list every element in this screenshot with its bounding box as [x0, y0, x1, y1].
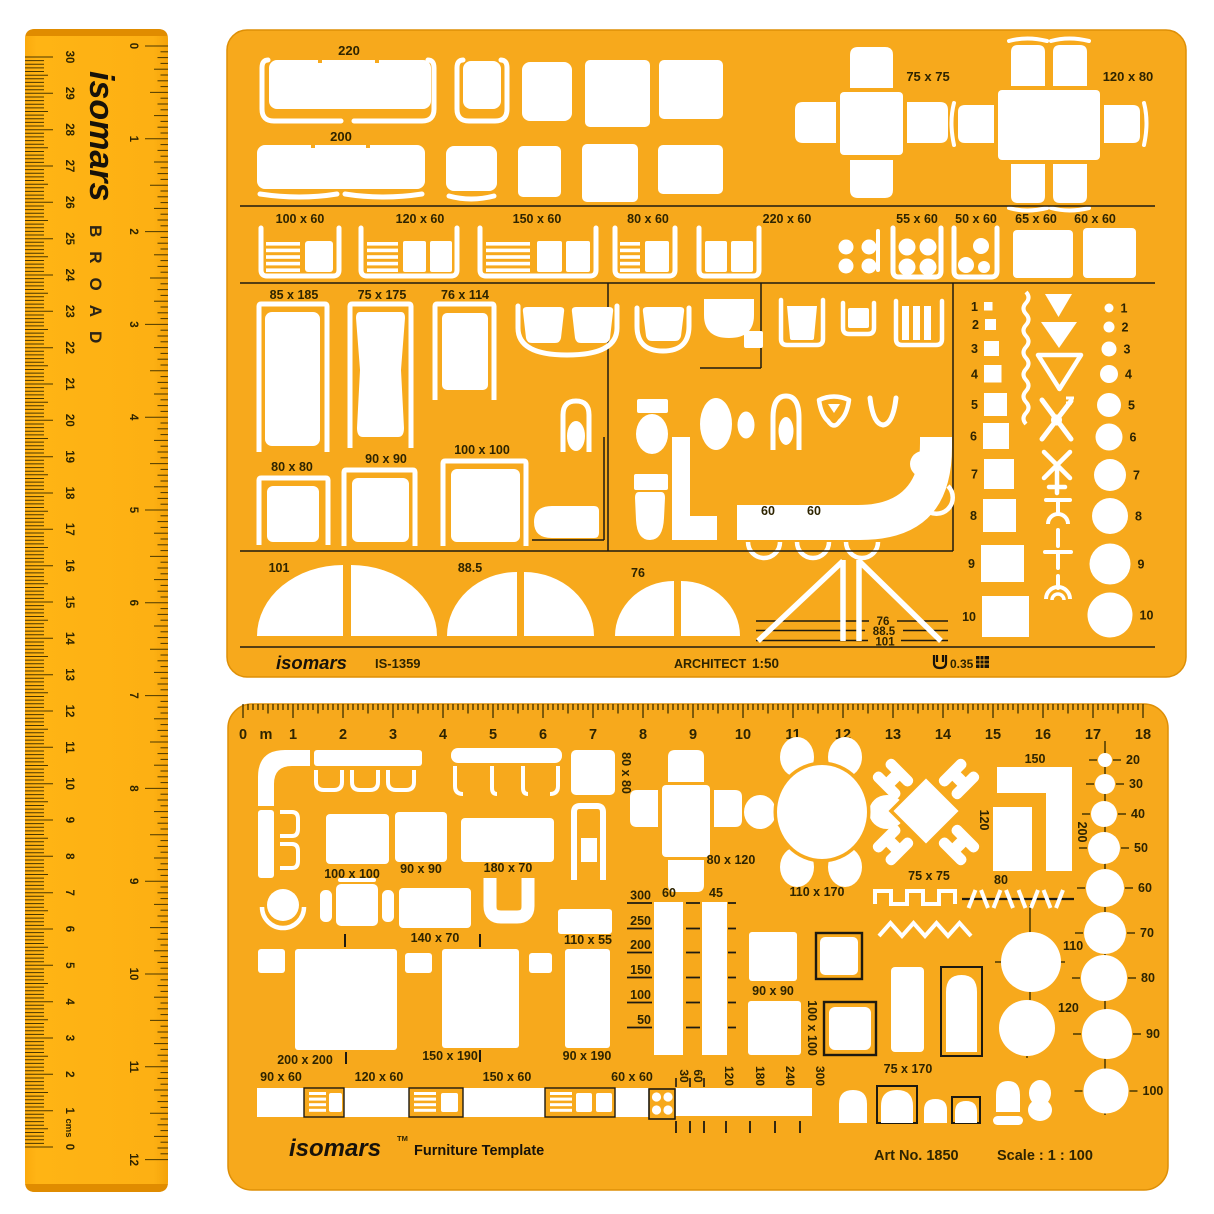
- svg-text:10: 10: [127, 968, 139, 981]
- svg-text:150 x 190: 150 x 190: [422, 1049, 478, 1063]
- svg-text:6: 6: [63, 926, 75, 932]
- svg-text:88.5: 88.5: [458, 561, 482, 575]
- svg-text:45: 45: [709, 886, 723, 900]
- svg-text:3: 3: [127, 321, 139, 327]
- svg-text:80 x 120: 80 x 120: [707, 853, 756, 867]
- svg-text:13: 13: [885, 727, 901, 743]
- svg-text:17: 17: [1085, 727, 1101, 743]
- svg-text:90 x 60: 90 x 60: [260, 1070, 302, 1084]
- svg-text:27: 27: [63, 160, 75, 173]
- svg-text:250: 250: [630, 914, 651, 928]
- svg-text:18: 18: [63, 487, 75, 500]
- svg-text:60: 60: [807, 504, 821, 518]
- svg-text:Art No. 1850: Art No. 1850: [874, 1148, 959, 1164]
- svg-text:5: 5: [1128, 399, 1135, 413]
- svg-text:0.35: 0.35: [950, 657, 974, 671]
- svg-text:80 x 80: 80 x 80: [271, 460, 313, 474]
- svg-text:18: 18: [1135, 727, 1151, 743]
- svg-text:10: 10: [962, 610, 976, 624]
- svg-text:50: 50: [637, 1013, 651, 1027]
- svg-text:20: 20: [63, 414, 75, 427]
- svg-text:4: 4: [439, 727, 447, 743]
- svg-text:15: 15: [985, 727, 1001, 743]
- svg-text:60: 60: [761, 504, 775, 518]
- svg-text:11: 11: [63, 741, 75, 754]
- svg-text:4: 4: [127, 414, 139, 421]
- svg-text:8: 8: [639, 727, 647, 743]
- svg-text:13: 13: [63, 668, 75, 681]
- svg-text:200 x 200: 200 x 200: [277, 1053, 333, 1067]
- svg-text:180: 180: [753, 1066, 767, 1086]
- svg-text:1: 1: [971, 300, 978, 314]
- svg-text:8: 8: [970, 509, 977, 523]
- svg-text:110 x 170: 110 x 170: [790, 885, 845, 899]
- svg-text:7: 7: [127, 692, 139, 698]
- svg-text:11: 11: [127, 1061, 139, 1074]
- svg-text:200: 200: [330, 129, 352, 144]
- svg-text:14: 14: [935, 727, 951, 743]
- svg-text:75 x 175: 75 x 175: [358, 288, 407, 302]
- svg-text:16: 16: [63, 559, 75, 572]
- svg-text:2: 2: [127, 228, 139, 234]
- svg-text:180 x 70: 180 x 70: [484, 861, 533, 875]
- svg-text:150: 150: [630, 963, 651, 977]
- svg-text:1: 1: [289, 727, 297, 743]
- svg-text:24: 24: [63, 269, 75, 282]
- svg-text:4: 4: [63, 998, 75, 1005]
- svg-text:0: 0: [239, 727, 247, 743]
- svg-text:80: 80: [1141, 971, 1155, 985]
- svg-text:90: 90: [1146, 1027, 1160, 1041]
- svg-text:ARCHITECT: ARCHITECT: [674, 657, 747, 671]
- svg-text:60 x 60: 60 x 60: [611, 1070, 653, 1084]
- svg-text:75 x 170: 75 x 170: [884, 1062, 933, 1076]
- svg-text:55 x 60: 55 x 60: [896, 212, 938, 226]
- svg-text:120: 120: [1058, 1001, 1079, 1015]
- svg-text:10: 10: [735, 727, 751, 743]
- svg-text:19: 19: [63, 450, 75, 463]
- svg-text:Scale : 1 : 100: Scale : 1 : 100: [997, 1148, 1093, 1164]
- svg-text:300: 300: [630, 889, 651, 903]
- svg-text:120 x 60: 120 x 60: [355, 1070, 404, 1084]
- svg-text:200: 200: [630, 938, 651, 952]
- svg-text:7: 7: [63, 889, 75, 895]
- svg-text:17: 17: [63, 523, 75, 536]
- svg-text:4: 4: [971, 367, 978, 381]
- svg-text:100 x 100: 100 x 100: [805, 1000, 819, 1056]
- svg-text:80 x 60: 80 x 60: [627, 212, 669, 226]
- svg-text:4: 4: [1125, 368, 1132, 382]
- svg-text:75 x 75: 75 x 75: [908, 869, 950, 883]
- svg-text:9: 9: [1138, 558, 1145, 572]
- svg-text:6: 6: [970, 430, 977, 444]
- svg-text:76: 76: [631, 566, 645, 580]
- svg-text:9: 9: [127, 878, 139, 884]
- svg-text:12: 12: [63, 705, 75, 718]
- svg-text:100 x 100: 100 x 100: [454, 443, 510, 457]
- svg-text:65 x 60: 65 x 60: [1015, 212, 1057, 226]
- svg-text:30: 30: [1129, 777, 1143, 791]
- svg-text:25: 25: [63, 232, 75, 245]
- svg-text:60: 60: [1138, 881, 1152, 895]
- svg-text:140 x 70: 140 x 70: [411, 931, 460, 945]
- svg-text:3: 3: [971, 342, 978, 356]
- svg-text:Furniture Template: Furniture Template: [414, 1143, 544, 1159]
- svg-text:9: 9: [689, 727, 697, 743]
- svg-text:5: 5: [971, 398, 978, 412]
- svg-text:150: 150: [1025, 752, 1046, 766]
- svg-text:120: 120: [977, 810, 991, 831]
- svg-text:150 x 60: 150 x 60: [483, 1070, 532, 1084]
- svg-text:3: 3: [63, 1035, 75, 1041]
- svg-text:300: 300: [813, 1066, 827, 1086]
- svg-text:220: 220: [338, 43, 360, 58]
- svg-text:30: 30: [63, 51, 75, 64]
- svg-text:28: 28: [63, 123, 75, 136]
- svg-text:IS-1359: IS-1359: [375, 656, 421, 671]
- svg-text:85 x 185: 85 x 185: [270, 288, 319, 302]
- svg-text:isomars: isomars: [289, 1135, 381, 1162]
- svg-text:1:50: 1:50: [752, 656, 779, 671]
- svg-text:8: 8: [63, 853, 75, 860]
- svg-text:7: 7: [1133, 469, 1140, 483]
- svg-text:3: 3: [1124, 343, 1131, 357]
- svg-text:100: 100: [630, 988, 651, 1002]
- svg-text:100: 100: [1143, 1084, 1164, 1098]
- svg-text:isomars: isomars: [82, 71, 120, 201]
- svg-text:240: 240: [783, 1066, 797, 1086]
- svg-text:110 x 55: 110 x 55: [564, 933, 612, 947]
- svg-text:50 x 60: 50 x 60: [955, 212, 997, 226]
- svg-text:60: 60: [691, 1069, 705, 1083]
- svg-text:76 x 114: 76 x 114: [441, 288, 489, 302]
- svg-text:3: 3: [389, 727, 397, 743]
- svg-text:150 x 60: 150 x 60: [513, 212, 562, 226]
- svg-text:2: 2: [63, 1071, 75, 1077]
- svg-text:220 x 60: 220 x 60: [763, 212, 812, 226]
- svg-text:TM: TM: [397, 1134, 408, 1143]
- svg-text:23: 23: [63, 305, 75, 318]
- svg-text:2: 2: [972, 318, 979, 332]
- svg-text:40: 40: [1131, 807, 1145, 821]
- svg-text:60 x 60: 60 x 60: [1074, 212, 1116, 226]
- svg-text:9: 9: [968, 557, 975, 571]
- svg-text:30: 30: [677, 1069, 691, 1083]
- svg-text:0: 0: [127, 43, 139, 49]
- svg-text:90 x 90: 90 x 90: [752, 984, 794, 998]
- svg-text:60: 60: [662, 886, 676, 900]
- svg-text:8: 8: [127, 785, 139, 792]
- svg-text:10: 10: [1140, 609, 1154, 623]
- svg-text:22: 22: [63, 341, 75, 354]
- svg-text:16: 16: [1035, 727, 1051, 743]
- svg-text:m: m: [260, 727, 273, 743]
- svg-text:110: 110: [1063, 939, 1083, 953]
- svg-text:90 x 90: 90 x 90: [365, 452, 407, 466]
- svg-text:6: 6: [539, 727, 547, 743]
- svg-text:14: 14: [63, 632, 75, 645]
- svg-text:75 x 75: 75 x 75: [906, 69, 949, 84]
- svg-text:5: 5: [489, 727, 497, 743]
- svg-text:80 x 80: 80 x 80: [619, 752, 633, 794]
- svg-text:120: 120: [722, 1066, 736, 1086]
- svg-text:cms: cms: [63, 1118, 74, 1137]
- svg-text:100 x 100: 100 x 100: [324, 867, 380, 881]
- svg-text:50: 50: [1134, 841, 1148, 855]
- svg-text:2: 2: [339, 727, 347, 743]
- svg-text:2: 2: [1122, 321, 1129, 335]
- svg-text:1: 1: [63, 1107, 75, 1114]
- svg-text:8: 8: [1135, 510, 1142, 524]
- svg-text:100 x 60: 100 x 60: [276, 212, 325, 226]
- svg-text:20: 20: [1126, 753, 1140, 767]
- svg-text:0: 0: [63, 1144, 75, 1150]
- svg-text:15: 15: [63, 596, 75, 609]
- svg-text:101: 101: [269, 561, 290, 575]
- svg-text:200: 200: [1075, 822, 1089, 843]
- svg-text:10: 10: [63, 777, 75, 790]
- svg-text:120 x 80: 120 x 80: [1103, 69, 1154, 84]
- svg-text:12: 12: [127, 1153, 139, 1166]
- svg-text:80: 80: [994, 873, 1008, 887]
- svg-text:21: 21: [63, 378, 75, 391]
- svg-text:90 x 190: 90 x 190: [563, 1049, 612, 1063]
- svg-text:70: 70: [1140, 926, 1154, 940]
- svg-text:9: 9: [63, 817, 75, 823]
- svg-text:5: 5: [127, 507, 139, 514]
- svg-text:6: 6: [127, 600, 139, 606]
- svg-text:7: 7: [589, 727, 597, 743]
- svg-text:6: 6: [1130, 431, 1137, 445]
- svg-text:BROAD: BROAD: [86, 225, 105, 357]
- svg-text:29: 29: [63, 87, 75, 100]
- svg-text:isomars: isomars: [276, 652, 347, 673]
- svg-text:1: 1: [1121, 302, 1128, 316]
- svg-text:120 x 60: 120 x 60: [396, 212, 445, 226]
- svg-text:90 x 90: 90 x 90: [400, 862, 442, 876]
- svg-text:26: 26: [63, 196, 75, 209]
- svg-text:1: 1: [127, 136, 139, 143]
- svg-text:5: 5: [63, 962, 75, 969]
- svg-text:7: 7: [971, 468, 978, 482]
